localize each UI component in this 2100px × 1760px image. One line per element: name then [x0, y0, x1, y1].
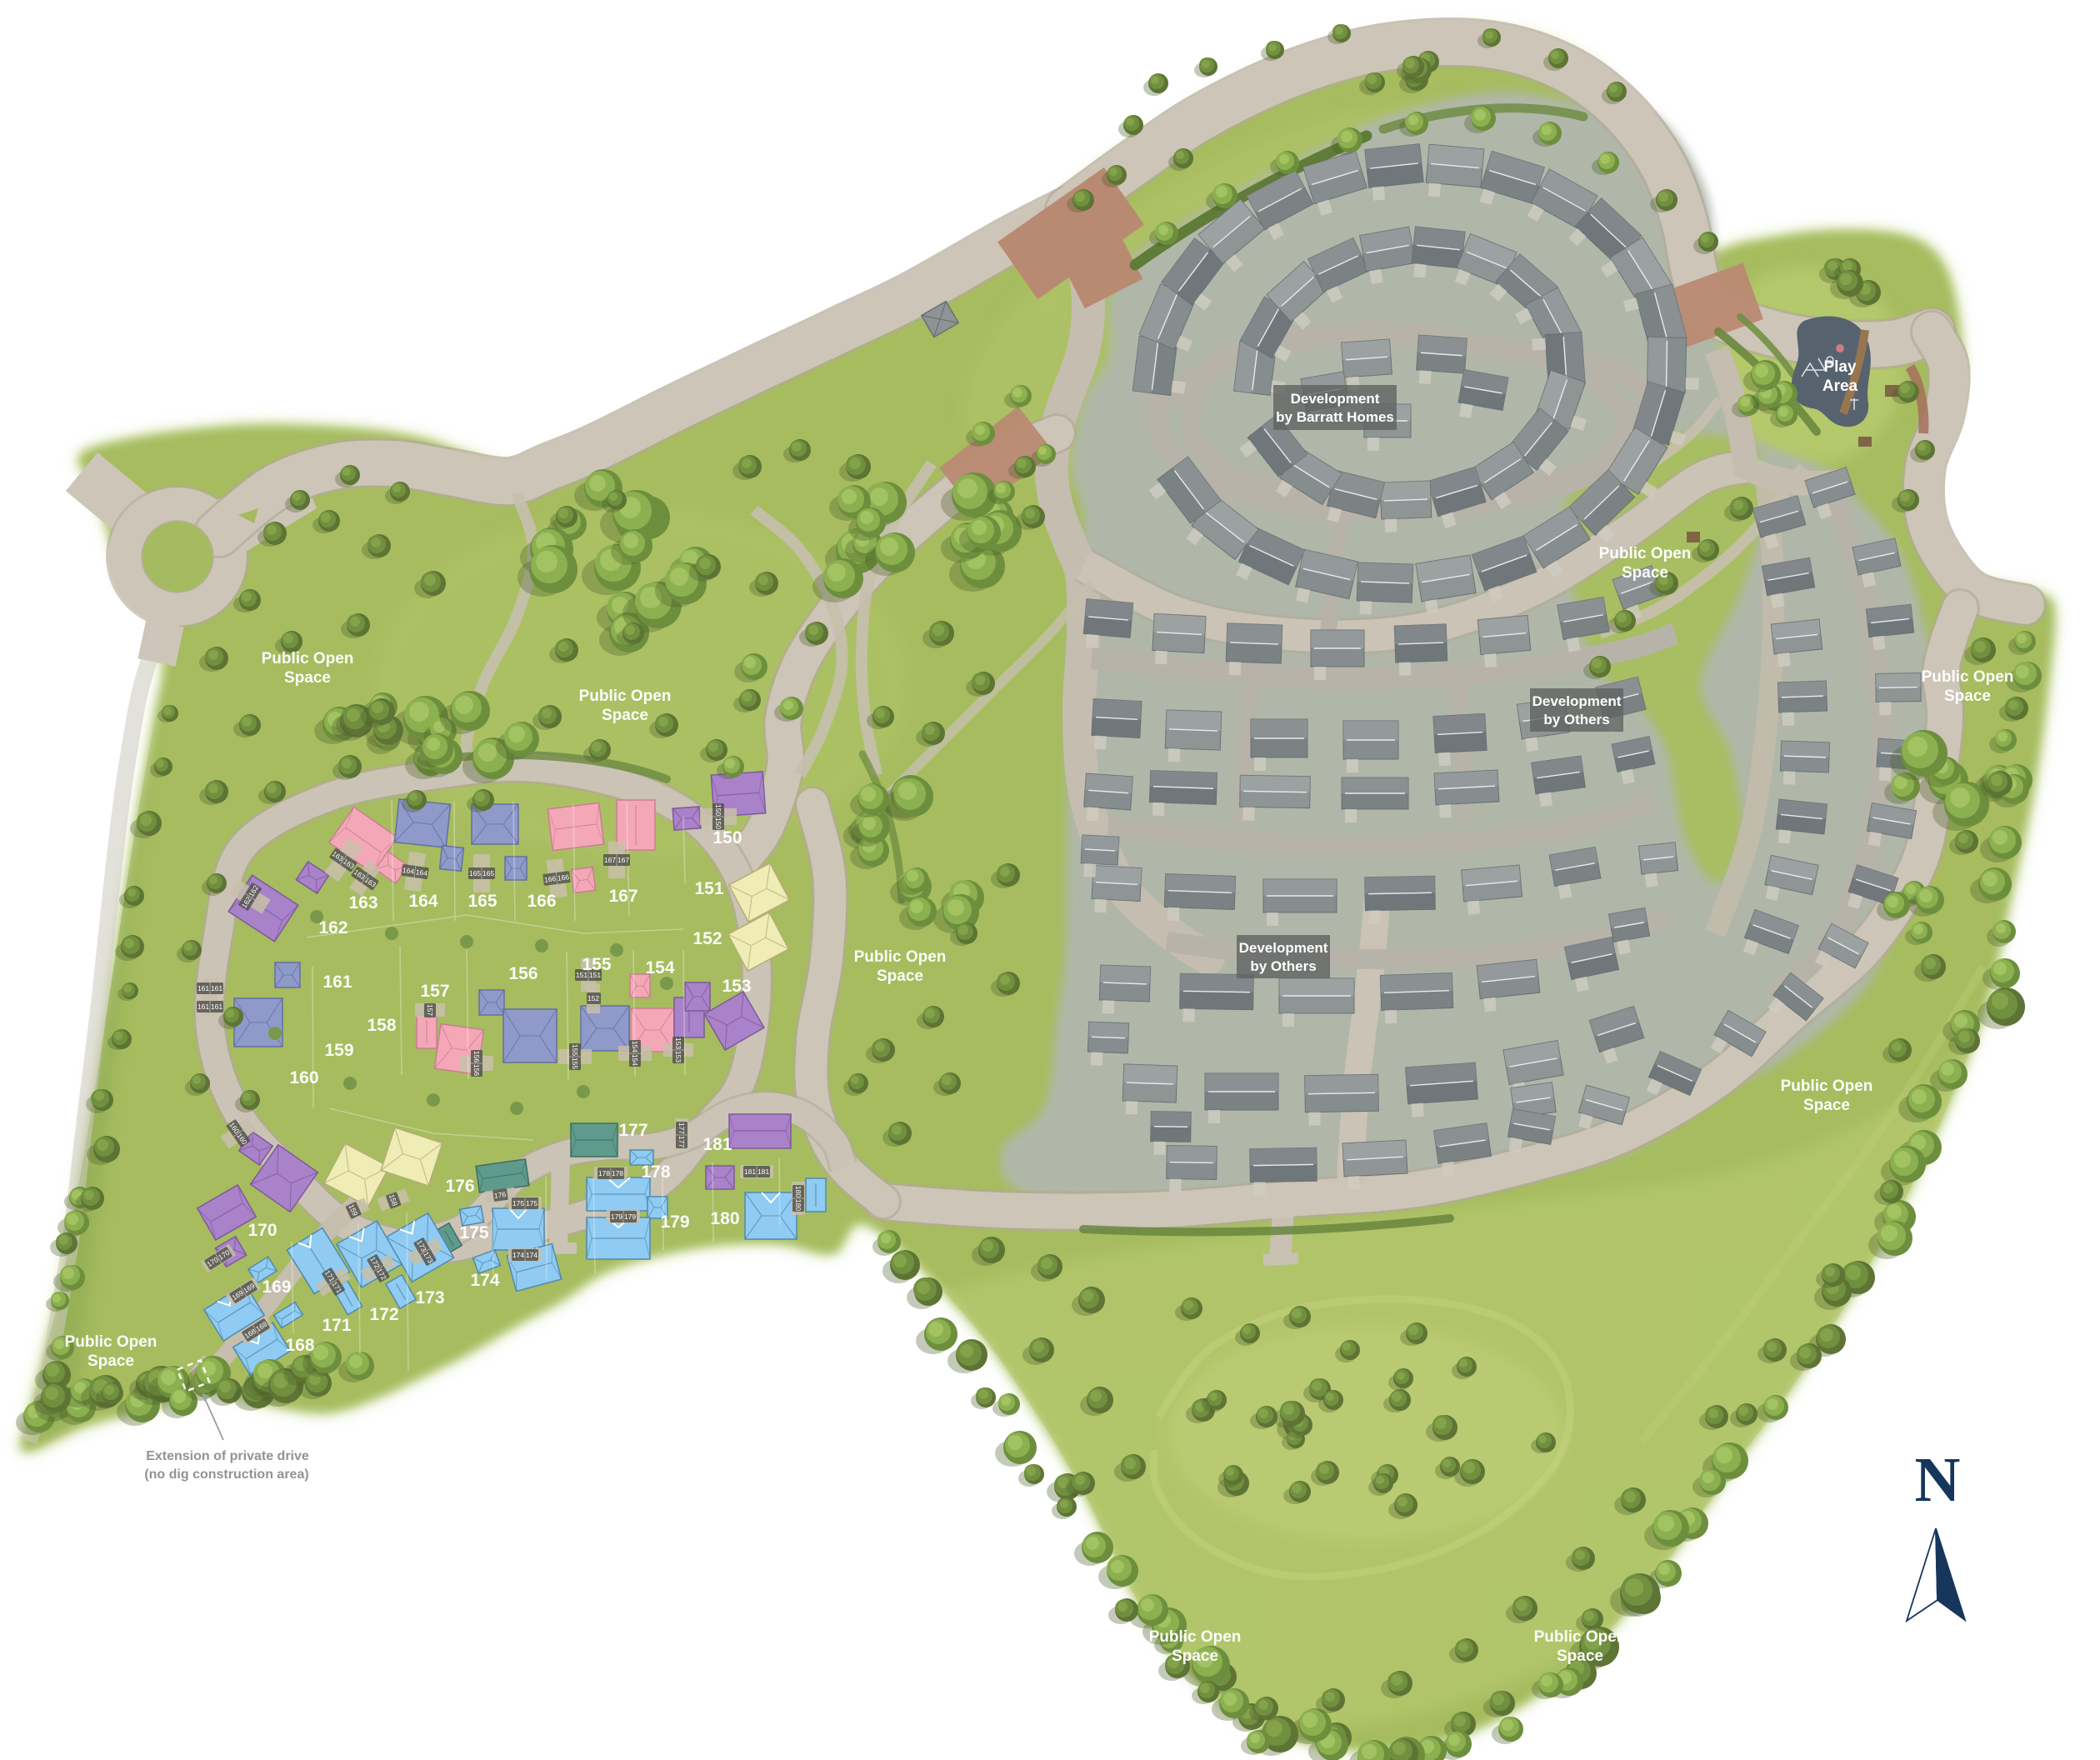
svg-text:176: 176 [493, 1190, 507, 1200]
svg-text:164: 164 [402, 866, 415, 876]
svg-text:175: 175 [512, 1199, 524, 1207]
svg-text:167: 167 [604, 856, 616, 864]
svg-text:165: 165 [467, 892, 497, 911]
svg-text:165: 165 [482, 869, 494, 877]
svg-text:180: 180 [794, 1186, 802, 1197]
svg-text:by Barratt Homes: by Barratt Homes [1276, 409, 1394, 425]
svg-text:175: 175 [459, 1223, 488, 1242]
svg-text:179: 179 [660, 1212, 689, 1232]
svg-text:Public Open: Public Open [1534, 1628, 1627, 1646]
svg-text:178: 178 [598, 1169, 610, 1177]
svg-text:181: 181 [744, 1167, 756, 1176]
svg-text:N: N [1915, 1445, 1961, 1515]
svg-text:150: 150 [714, 804, 722, 816]
svg-text:155: 155 [582, 955, 611, 974]
svg-text:160: 160 [289, 1068, 318, 1087]
svg-text:156: 156 [472, 1051, 481, 1062]
svg-text:Space: Space [87, 1352, 134, 1370]
svg-text:174: 174 [470, 1271, 499, 1290]
svg-text:174: 174 [526, 1251, 537, 1259]
svg-text:177: 177 [677, 1136, 686, 1147]
svg-text:166: 166 [543, 874, 557, 884]
svg-text:Public Open: Public Open [1922, 668, 2014, 686]
svg-text:170: 170 [247, 1221, 277, 1240]
svg-text:165: 165 [469, 869, 481, 877]
svg-text:161: 161 [211, 984, 222, 992]
svg-text:154: 154 [631, 1041, 639, 1052]
svg-text:by Others: by Others [1250, 958, 1316, 974]
svg-text:157: 157 [426, 1004, 434, 1016]
svg-text:180: 180 [710, 1209, 739, 1228]
svg-text:179: 179 [611, 1212, 622, 1221]
svg-text:Development: Development [1239, 940, 1328, 956]
svg-text:157: 157 [420, 982, 449, 1001]
svg-text:152: 152 [587, 994, 599, 1002]
svg-text:174: 174 [512, 1251, 524, 1259]
svg-text:178: 178 [612, 1169, 623, 1177]
svg-text:155: 155 [571, 1044, 579, 1056]
svg-text:164: 164 [415, 867, 428, 877]
svg-text:Space: Space [1944, 687, 1991, 705]
svg-text:161: 161 [197, 1002, 209, 1011]
svg-text:by Others: by Others [1543, 712, 1609, 727]
svg-text:167: 167 [617, 856, 629, 864]
svg-text:Public Open: Public Open [1781, 1077, 1873, 1095]
svg-text:177: 177 [677, 1122, 686, 1134]
svg-text:Public Open: Public Open [1599, 545, 1692, 562]
svg-text:171: 171 [322, 1316, 351, 1335]
svg-text:151: 151 [694, 879, 723, 898]
svg-text:163: 163 [348, 893, 377, 912]
svg-text:161: 161 [197, 984, 209, 992]
svg-text:166: 166 [527, 892, 556, 911]
svg-text:Public Open: Public Open [854, 948, 947, 966]
svg-text:Space: Space [1557, 1647, 1603, 1665]
svg-text:181: 181 [702, 1135, 732, 1154]
svg-text:Public Open: Public Open [1149, 1628, 1242, 1646]
svg-text:178: 178 [641, 1162, 670, 1182]
svg-text:153: 153 [722, 977, 751, 996]
svg-text:159: 159 [324, 1041, 353, 1060]
svg-text:Space: Space [1622, 564, 1668, 582]
svg-text:177: 177 [618, 1121, 647, 1140]
svg-text:161: 161 [322, 972, 352, 992]
svg-text:156: 156 [508, 964, 537, 983]
svg-text:180: 180 [794, 1199, 802, 1211]
svg-text:Development: Development [1532, 693, 1622, 709]
svg-text:167: 167 [608, 887, 637, 906]
svg-text:Public Open: Public Open [262, 650, 354, 667]
svg-text:152: 152 [692, 929, 722, 948]
svg-text:161: 161 [211, 1002, 222, 1011]
svg-text:Space: Space [602, 707, 648, 724]
svg-text:Space: Space [1172, 1647, 1218, 1665]
svg-text:153: 153 [674, 1037, 682, 1049]
svg-text:181: 181 [757, 1167, 769, 1176]
svg-text:Play: Play [1823, 358, 1857, 376]
svg-text:Extension of private drive: Extension of private drive [146, 1449, 309, 1463]
svg-text:Public Open: Public Open [65, 1333, 157, 1351]
svg-text:158: 158 [367, 1016, 396, 1035]
svg-text:179: 179 [624, 1212, 636, 1221]
svg-text:(no dig construction area): (no dig construction area) [144, 1467, 308, 1482]
svg-text:176: 176 [445, 1177, 474, 1196]
svg-text:Space: Space [877, 967, 923, 985]
svg-text:173: 173 [415, 1288, 444, 1307]
svg-text:Area: Area [1822, 377, 1858, 395]
svg-text:Space: Space [1803, 1097, 1850, 1114]
svg-text:Space: Space [284, 669, 331, 687]
svg-text:169: 169 [262, 1277, 291, 1297]
svg-text:166: 166 [557, 872, 570, 882]
svg-text:154: 154 [631, 1054, 639, 1066]
svg-text:168: 168 [285, 1336, 314, 1355]
svg-text:153: 153 [674, 1051, 682, 1062]
svg-text:Public Open: Public Open [579, 687, 672, 705]
svg-text:175: 175 [526, 1199, 537, 1207]
svg-text:172: 172 [369, 1305, 398, 1324]
svg-text:150: 150 [712, 828, 742, 847]
svg-text:154: 154 [645, 958, 674, 977]
svg-text:164: 164 [408, 892, 437, 911]
svg-text:Development: Development [1291, 391, 1380, 407]
svg-text:155: 155 [571, 1057, 579, 1069]
svg-text:162: 162 [318, 918, 347, 937]
svg-text:156: 156 [472, 1064, 481, 1076]
